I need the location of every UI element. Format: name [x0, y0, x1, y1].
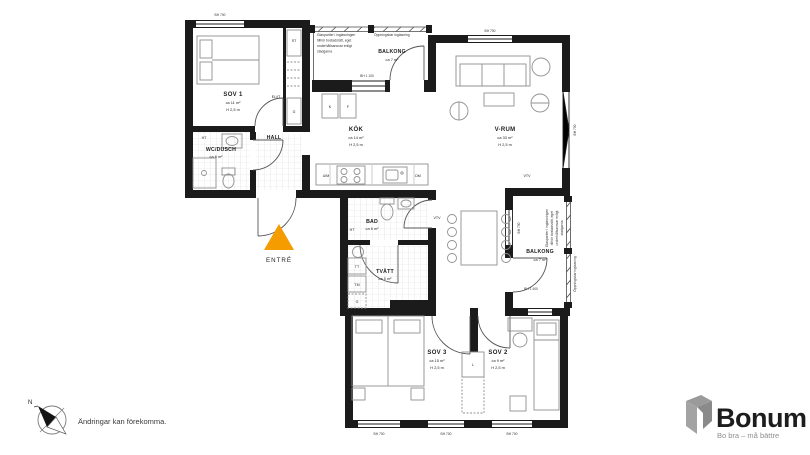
sov3-bed [352, 316, 424, 400]
fixture-label-g-tvatt: G [356, 300, 359, 304]
room-area-bad: ca 6 m² [366, 226, 380, 231]
room-label-sov2: SOV 2 [488, 350, 508, 356]
room-label-wc-dusch: WC/DUSCH [206, 147, 236, 153]
tiled-floors [193, 132, 428, 308]
room-area-sov1: ca 11 m² [226, 100, 242, 105]
glazing-note-line1: Glaspartier i inglasningen [317, 33, 355, 37]
room-label-el-it: EL/IT [272, 95, 281, 99]
compass: N [28, 400, 66, 434]
room-label-balkong-right: BALKONG [526, 249, 554, 255]
glazing-note-r-line1: Glaspartier i inglasningen [545, 209, 549, 247]
window-label-bh700-5: BH 700 [374, 432, 385, 436]
fixture-label-vtv-vrum: VTV [524, 174, 532, 178]
room-area-vrum: ca 33 m² [497, 135, 513, 140]
openable-note-top: Öppningsbar inglasning [374, 33, 410, 37]
entrance-arrow-icon [264, 224, 294, 250]
fixture-label-st: ST [292, 39, 297, 43]
sov1-bed [197, 36, 259, 84]
room-label-balkong-top: BALKONG [378, 49, 406, 55]
fixture-label-g-hall: G [293, 110, 296, 114]
room-height-kok: H 2,5 m [349, 142, 363, 147]
window-label-bh700-2: BH 700 [485, 29, 496, 33]
room-area-sov2: ca 9 m² [492, 358, 506, 363]
room-label-hall: HALL [267, 135, 282, 141]
window-label-bh700-1: BH 700 [215, 13, 226, 17]
room-height-sov3: H 2,5 m [430, 365, 444, 370]
room-label-bad: BAD [366, 219, 378, 225]
room-label-tvatt: TVÄTT [376, 268, 394, 275]
fixture-label-tm: TM [354, 283, 359, 287]
room-height-sov2: H 2,5 m [491, 365, 505, 370]
bonum-tagline-text: Bo bra – må bättre [717, 431, 779, 440]
glazing-note-line3: underhållsansvar enligt [317, 44, 352, 48]
floorplan-page: SOV 1 ca 11 m² H 2,5 m WC/DUSCH ca 6 m² … [0, 0, 810, 455]
room-label-kok: KÖK [349, 126, 364, 133]
compass-north-label: N [28, 400, 32, 406]
window-label-bh1400: BH 1 400 [524, 287, 538, 291]
window-label-bh700-6: BH 700 [441, 432, 452, 436]
glazing-note-line4: stadgarna [317, 50, 332, 54]
floorplan-drawing: SOV 1 ca 11 m² H 2,5 m WC/DUSCH ca 6 m² … [0, 0, 810, 455]
closet-l [462, 352, 484, 413]
room-label-vrum: V-RUM [495, 127, 516, 133]
room-area-wc-dusch: ca 6 m² [210, 154, 224, 159]
window-label-bh700-7: BH 700 [507, 432, 518, 436]
fixture-label-k: K [329, 105, 332, 109]
entrance-label: ENTRÉ [266, 257, 292, 264]
vrum-furniture [450, 56, 550, 120]
room-area-sov3: ca 15 m² [429, 358, 445, 363]
bonum-logo: Bonum Bo bra – må bättre [686, 395, 806, 440]
room-label-sov3: SOV 3 [427, 350, 447, 356]
disclaimer-text: Ändringar kan förekomma. [78, 417, 166, 426]
room-height-sov1: H 2,5 m [226, 107, 240, 112]
fixture-label-l: L [472, 363, 474, 367]
fixture-label-f: F [347, 105, 350, 109]
fixture-label-ht-bad: HT [350, 228, 356, 232]
room-area-balkong-right: ca 7 m² [534, 257, 548, 262]
glazing-note-r-line4: stadgarna [560, 220, 564, 235]
fixture-label-fs: FS [306, 159, 311, 163]
window-label-bh700-4: BH 700 [517, 222, 521, 233]
glazing-note-r-line3: underhållsansvar enligt [555, 211, 559, 246]
kitchen-counter [316, 94, 428, 185]
sov2-furniture [508, 318, 559, 411]
room-area-kok: ca 14 m² [348, 135, 364, 140]
openable-note-right: Öppningsbar inglasning [573, 256, 577, 292]
window-label-bh1100: BH 1 100 [360, 74, 374, 78]
fixture-label-um: U/M [323, 174, 330, 178]
room-area-tvatt: ca 5 m² [379, 276, 393, 281]
fixture-label-vtv-bad: VTV [434, 216, 442, 220]
glazing-note-r-line2: tillhör bostadsrätt, eget [550, 211, 554, 245]
dining-table [448, 211, 511, 265]
room-label-sov1: SOV 1 [223, 92, 243, 98]
room-area-balkong-top: ca 7 m² [386, 57, 400, 62]
bonum-brand-text: Bonum [716, 403, 806, 433]
fixture-label-dm: DM [415, 174, 421, 178]
glazing-note-line2: tillhör bostadsrätt, eget [317, 39, 351, 43]
window-label-bh700-3: BH 700 [573, 124, 577, 135]
entrance-marker: ENTRÉ [264, 224, 294, 264]
room-height-vrum: H 2,5 m [498, 142, 512, 147]
fixture-label-ht-wc: HT [202, 136, 208, 140]
